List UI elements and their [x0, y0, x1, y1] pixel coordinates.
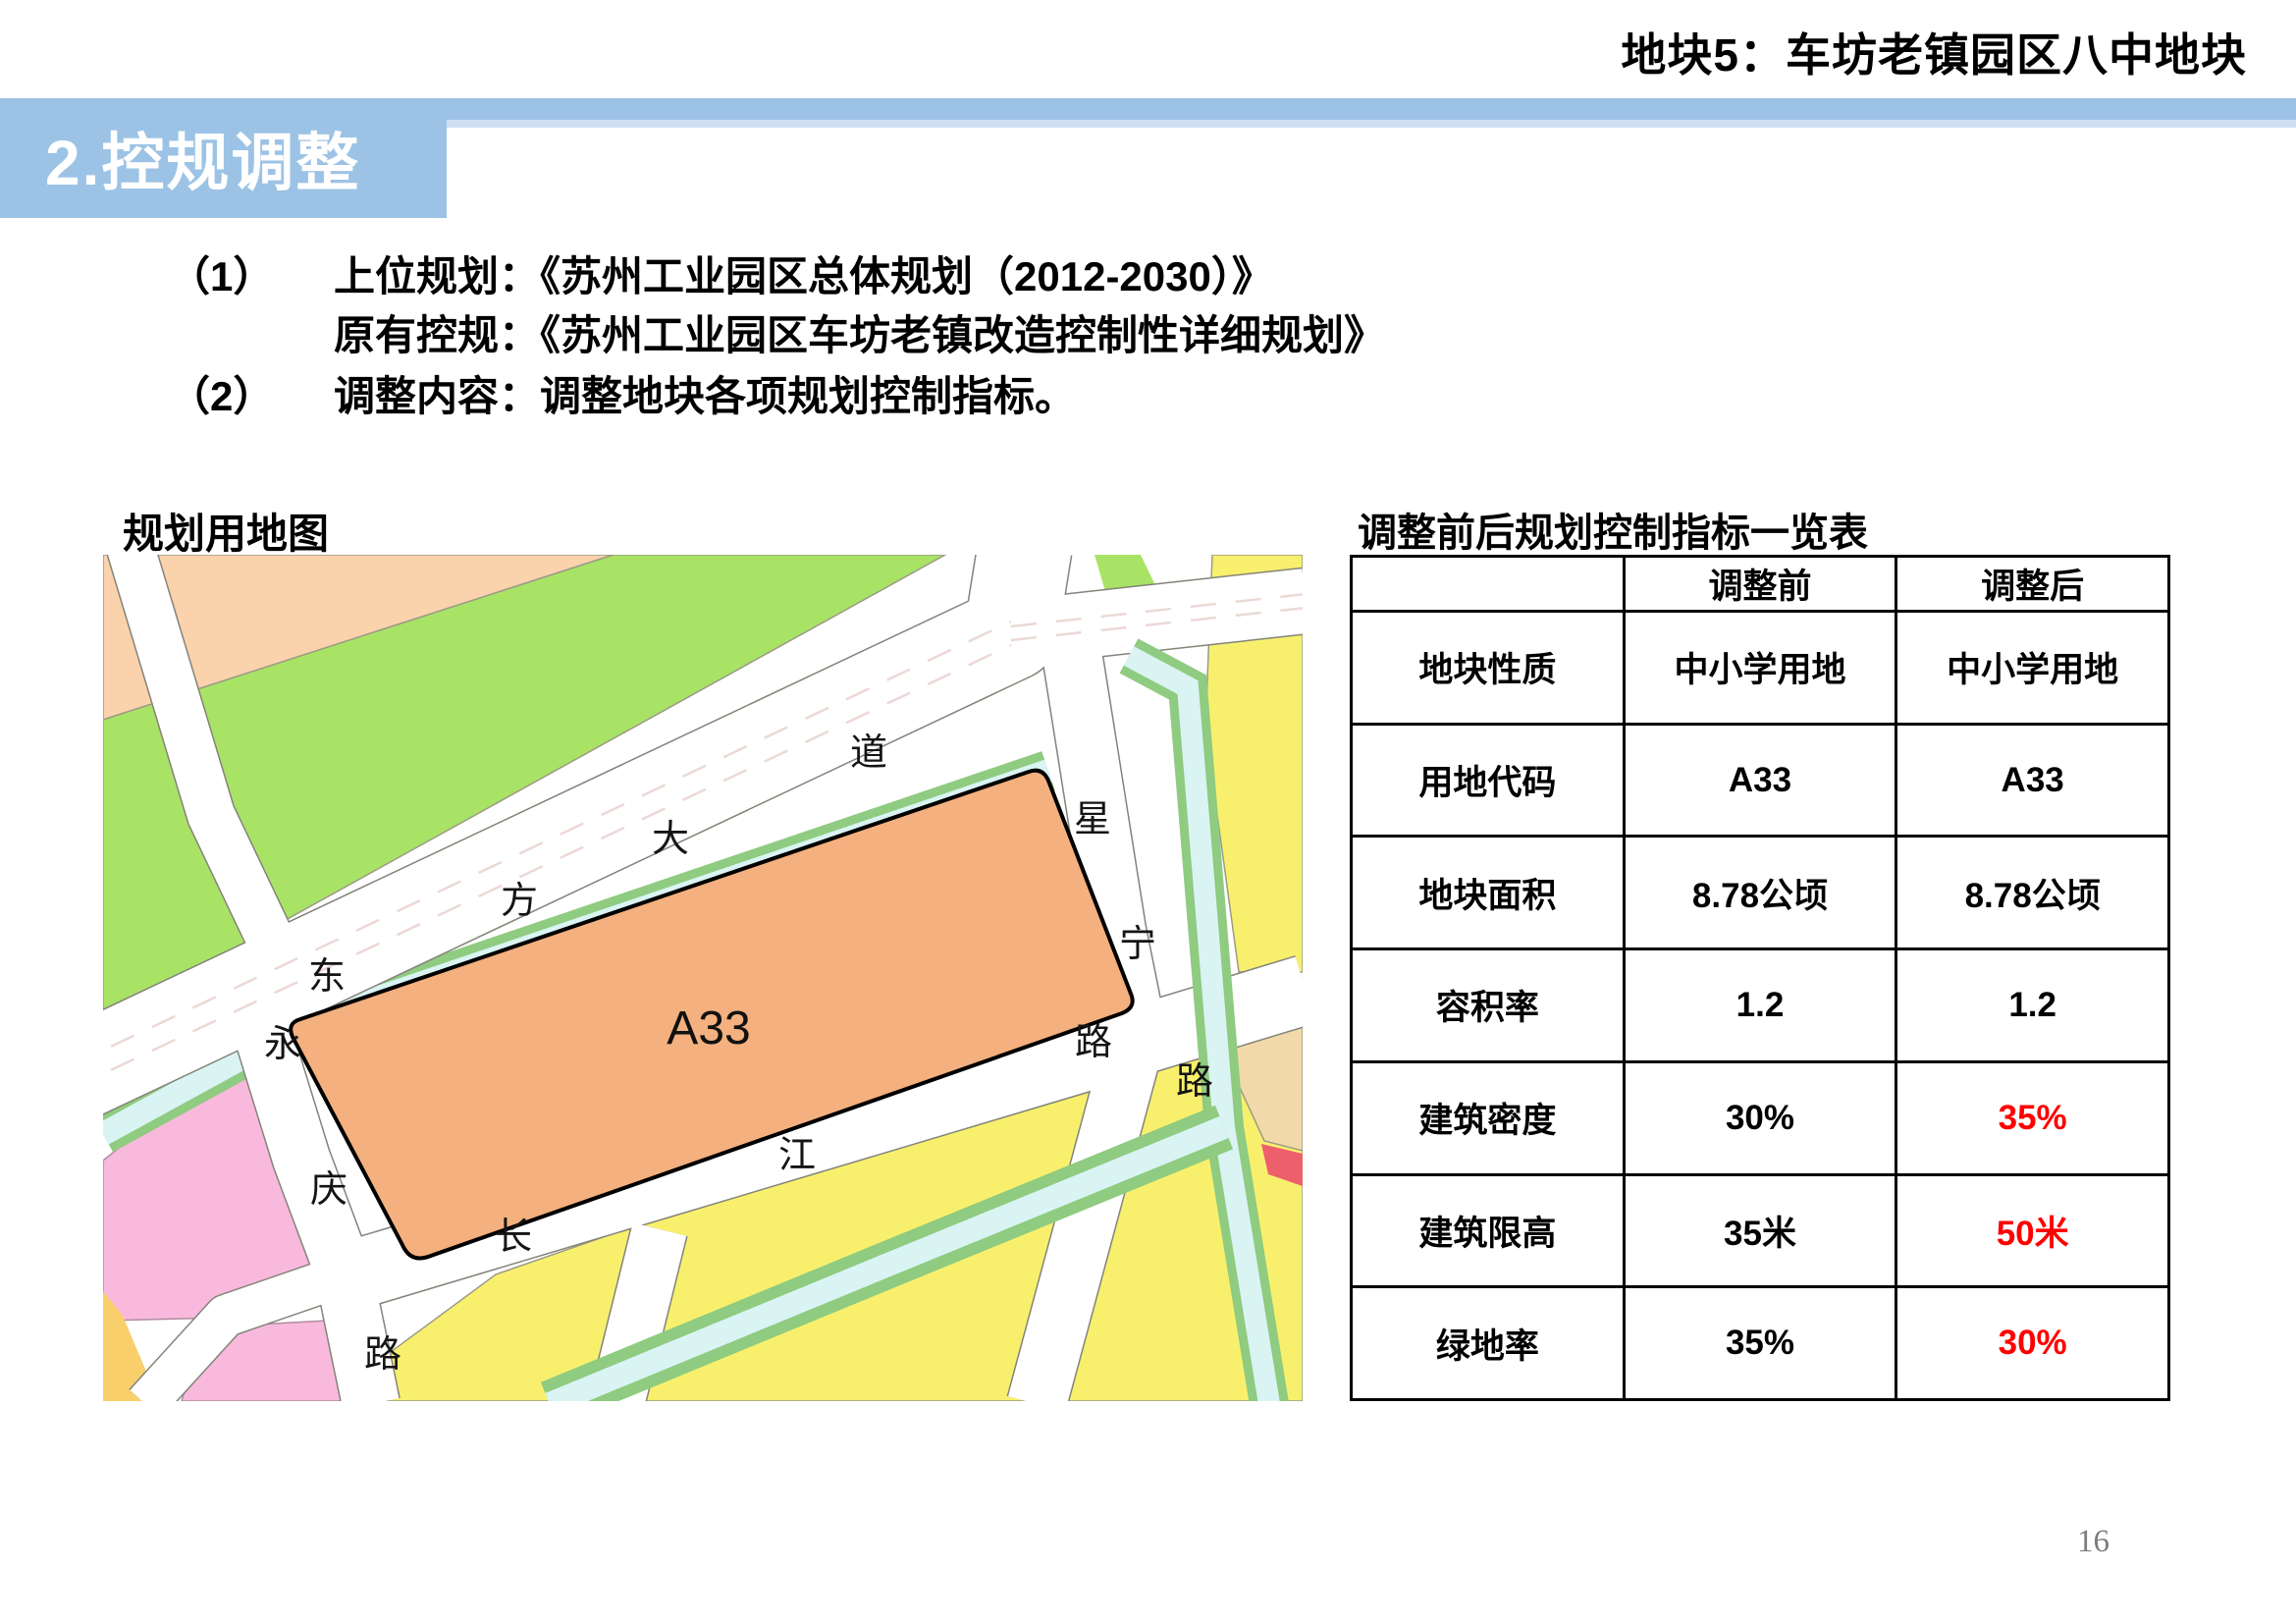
cell-before: 中小学用地: [1624, 612, 1896, 725]
cell-after: A33: [1896, 724, 2169, 837]
table-caption: 调整前后规划控制指标一览表: [1358, 501, 1868, 558]
road-label: 星: [1074, 799, 1111, 840]
road-label: 宁: [1119, 924, 1156, 965]
line2-label: 原有控规：: [334, 312, 540, 358]
col-header-blank: [1352, 557, 1625, 612]
body-line-3: （2） 调整内容：调整地块各项规划控制指标。: [169, 363, 1076, 423]
cell-label: 建筑限高: [1352, 1174, 1625, 1287]
table-row: 建筑限高35米50米: [1352, 1174, 2169, 1287]
table-row: 地块面积8.78公顷8.78公顷: [1352, 837, 2169, 949]
planning-map: A33 东 方 大 道 星 宁 路 长 江 路 永 庆 路: [103, 555, 1303, 1401]
road-label: 方: [501, 881, 538, 922]
slide: 地块5：车坊老镇园区八中地块 2.控规调整 （1） 上位规划：《苏州工业园区总体…: [0, 0, 2296, 1624]
table-row: 用地代码A33A33: [1352, 724, 2169, 837]
body-line-2: 原有控规：《苏州工业园区车坊老镇改造控制性详细规划》: [169, 302, 1385, 362]
road-label: 永: [264, 1024, 301, 1065]
cell-label: 绿地率: [1352, 1287, 1625, 1400]
cell-before: A33: [1624, 724, 1896, 837]
planning-map-svg: A33 东 方 大 道 星 宁 路 长 江 路 永 庆 路: [103, 555, 1303, 1401]
indicator-table: 调整前 调整后 地块性质中小学用地中小学用地用地代码A33A33地块面积8.78…: [1350, 555, 2170, 1401]
road-label: 路: [1176, 1061, 1213, 1103]
body-line-1: （1） 上位规划：《苏州工业园区总体规划（2012-2030）》: [169, 244, 1273, 303]
cell-before: 8.78公顷: [1624, 837, 1896, 949]
line3-value: 调整地块各项规划控制指标。: [540, 373, 1076, 419]
cell-label: 地块面积: [1352, 837, 1625, 949]
cell-before: 35米: [1624, 1174, 1896, 1287]
line3-label: 调整内容：: [334, 373, 540, 419]
road-label: 江: [778, 1135, 816, 1176]
col-header-before: 调整前: [1624, 557, 1896, 612]
cell-before: 35%: [1624, 1287, 1896, 1400]
cell-after: 35%: [1896, 1061, 2169, 1174]
page-title: 地块5：车坊老镇园区八中地块: [1621, 20, 2247, 84]
road-label: 路: [1075, 1022, 1112, 1063]
cell-after: 中小学用地: [1896, 612, 2169, 725]
list-number: （1）: [169, 244, 274, 303]
cell-label: 地块性质: [1352, 612, 1625, 725]
road-label: 长: [495, 1217, 532, 1258]
cell-after: 8.78公顷: [1896, 837, 2169, 949]
road-label: 道: [850, 732, 887, 774]
line2-value: 《苏州工业园区车坊老镇改造控制性详细规划》: [540, 312, 1385, 358]
road-label: 庆: [310, 1169, 347, 1211]
road-label: 东: [308, 956, 346, 998]
cell-before: 1.2: [1624, 949, 1896, 1062]
section-title: 2.控规调整: [45, 113, 360, 203]
cell-after: 50米: [1896, 1174, 2169, 1287]
line1-label: 上位规划：: [334, 253, 540, 299]
cell-label: 容积率: [1352, 949, 1625, 1062]
road-dongfang-east: [1011, 601, 1303, 633]
road-label: 路: [364, 1334, 401, 1376]
cell-after: 1.2: [1896, 949, 2169, 1062]
cell-before: 30%: [1624, 1061, 1896, 1174]
map-caption: 规划用地图: [123, 501, 329, 561]
table-header-row: 调整前 调整后: [1352, 557, 2169, 612]
plot-a33-label: A33: [667, 1002, 750, 1055]
section-banner: 2.控规调整: [0, 98, 447, 218]
road-label: 大: [652, 819, 689, 860]
cell-label: 建筑密度: [1352, 1061, 1625, 1174]
col-header-after: 调整后: [1896, 557, 2169, 612]
indicator-table-body: 地块性质中小学用地中小学用地用地代码A33A33地块面积8.78公顷8.78公顷…: [1352, 612, 2169, 1400]
cell-after: 30%: [1896, 1287, 2169, 1400]
table-row: 绿地率35%30%: [1352, 1287, 2169, 1400]
table-row: 建筑密度30%35%: [1352, 1061, 2169, 1174]
table-row: 容积率1.21.2: [1352, 949, 2169, 1062]
cell-label: 用地代码: [1352, 724, 1625, 837]
table-row: 地块性质中小学用地中小学用地: [1352, 612, 2169, 725]
list-number: （2）: [169, 363, 274, 423]
line1-value: 《苏州工业园区总体规划（2012-2030）》: [540, 253, 1273, 299]
page-number: 16: [2077, 1524, 2109, 1560]
